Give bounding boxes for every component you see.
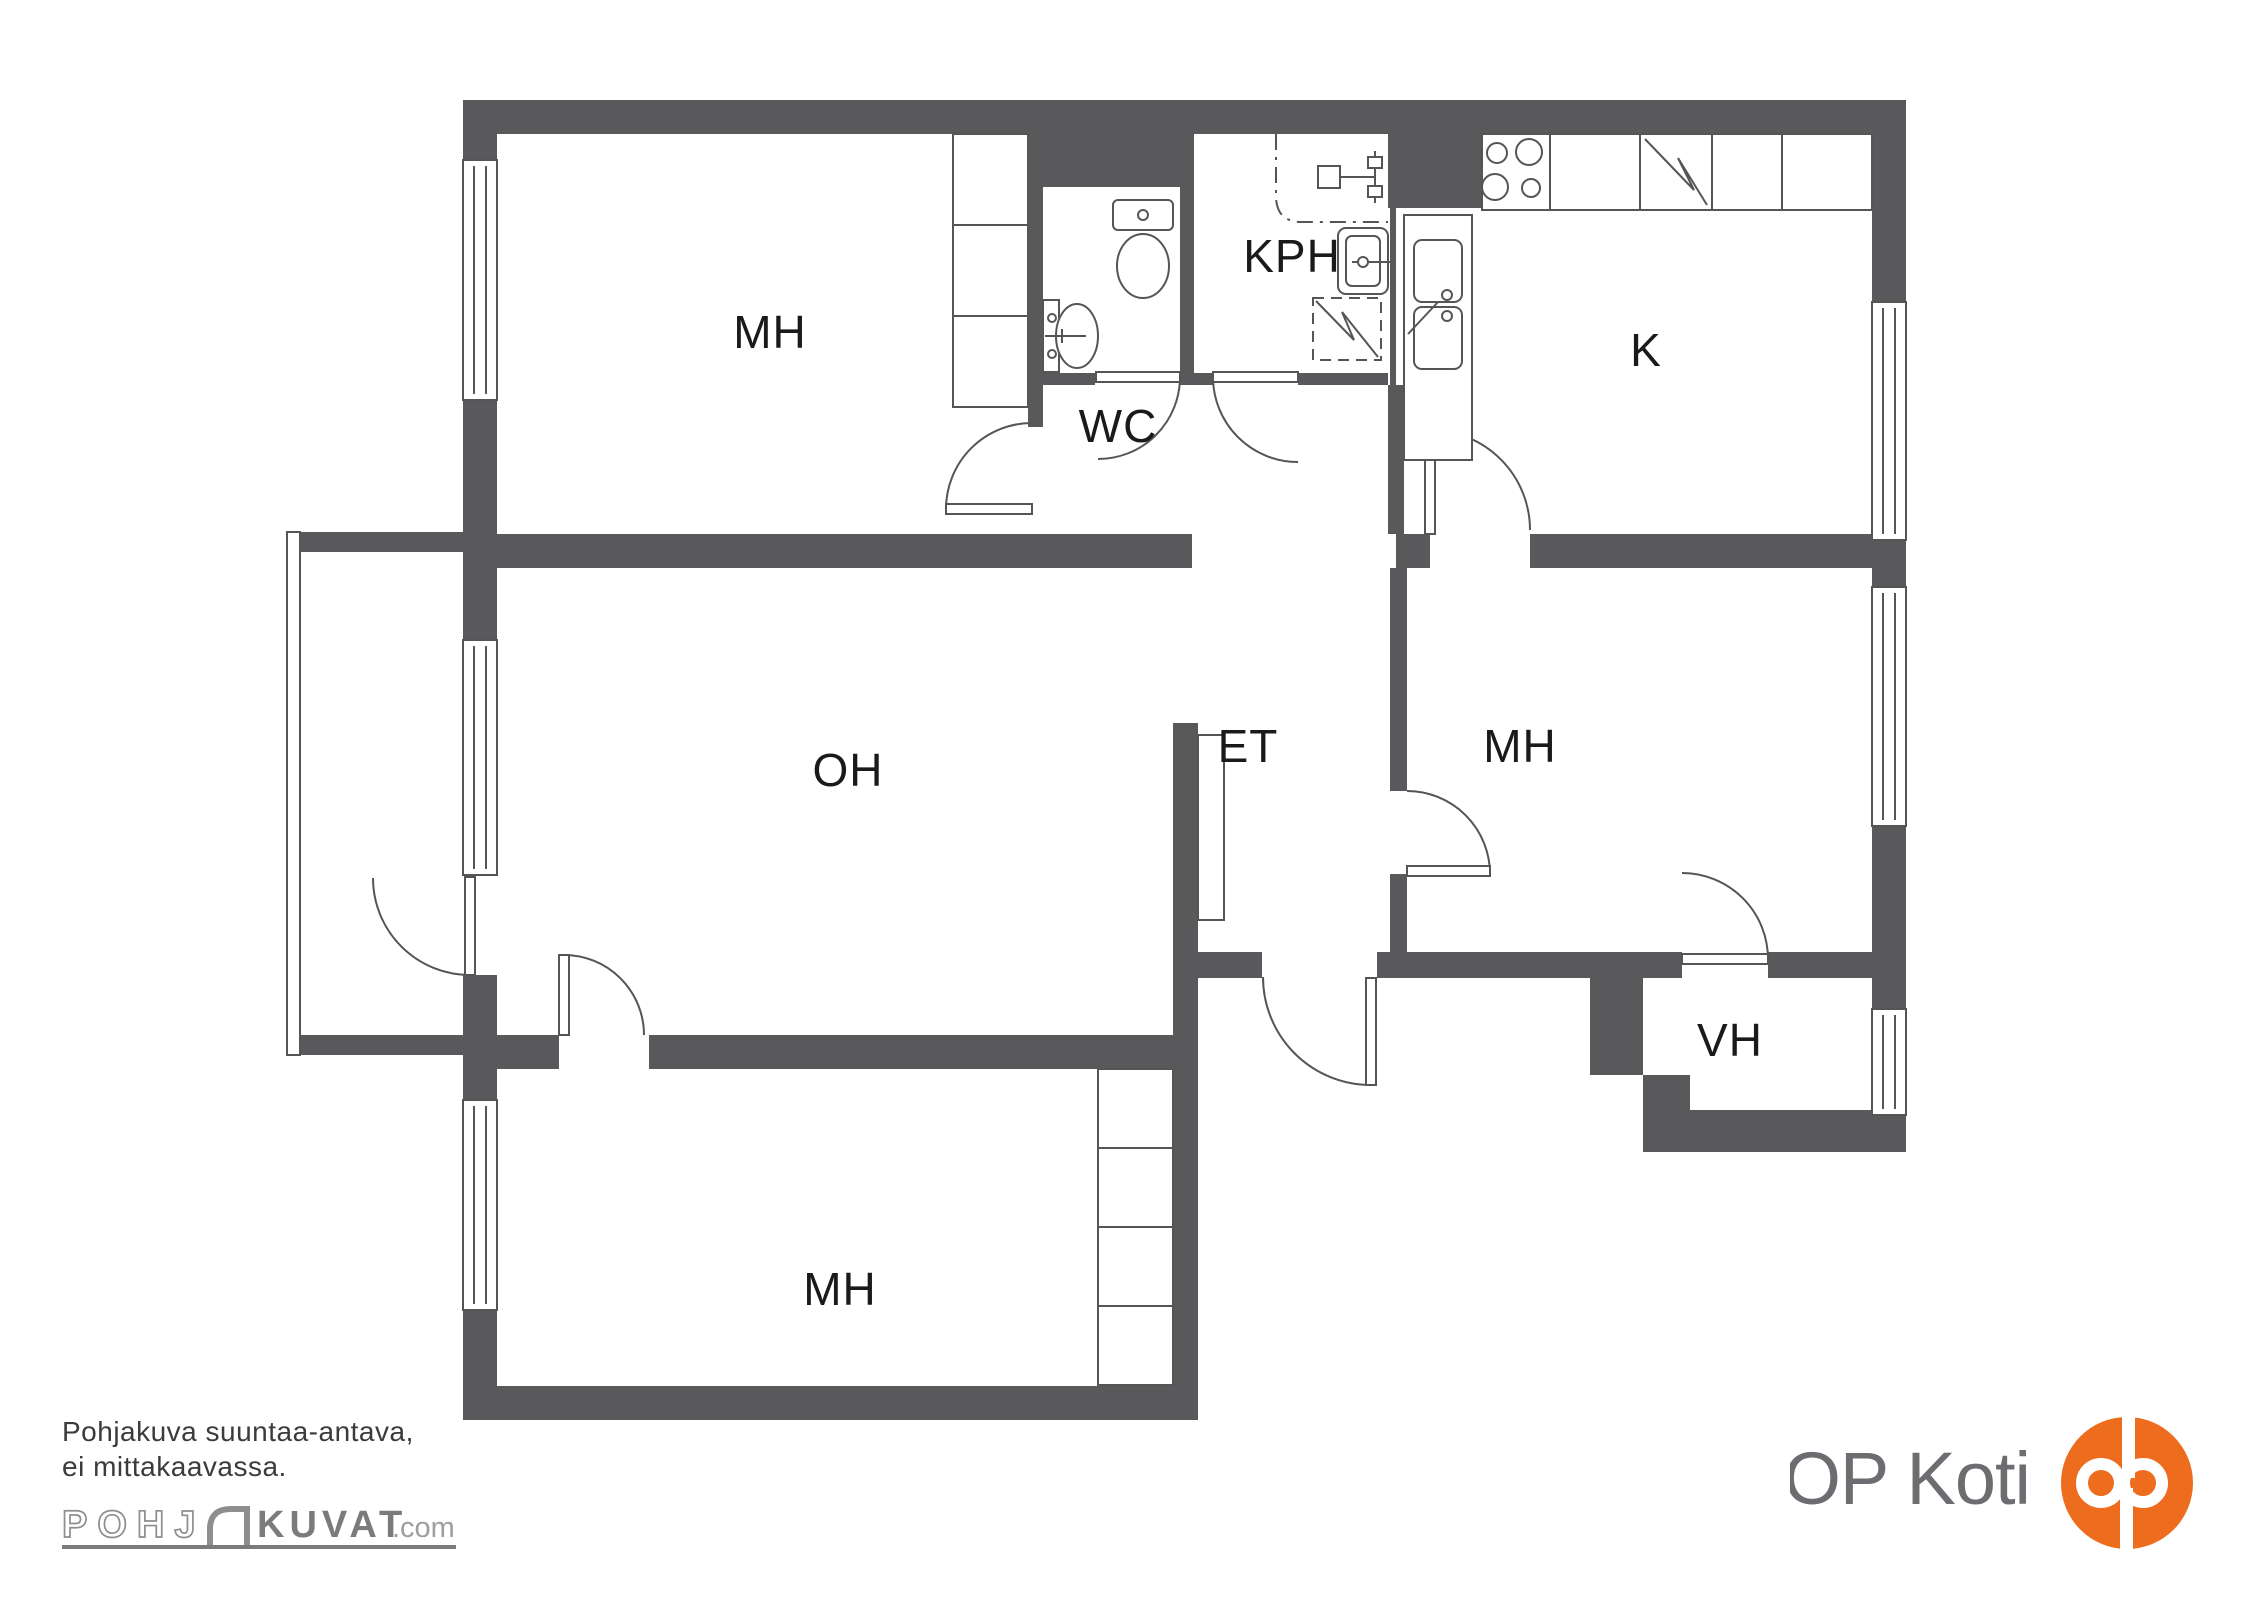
window-living-room (463, 640, 497, 875)
door-arc-icon (210, 1509, 247, 1547)
shower-icon (1318, 151, 1382, 203)
wall (463, 534, 1192, 568)
doors (373, 372, 1768, 1085)
wall (1872, 134, 1906, 302)
door-bedroom-right (1407, 791, 1490, 876)
wardrobe-bedroom-top (953, 134, 1028, 407)
wall (1388, 385, 1404, 534)
room-label-bedroom-top: MH (733, 306, 807, 358)
wall (1388, 134, 1482, 208)
wall (1173, 723, 1198, 1420)
room-label-entry: ET (1218, 720, 1279, 772)
balcony-railing (287, 532, 300, 1055)
wall (463, 568, 497, 640)
door-entrance (1263, 977, 1376, 1085)
room-label-kitchen: K (1630, 324, 1662, 376)
wall (1377, 952, 1590, 978)
wall (1396, 534, 1430, 568)
wall (1390, 208, 1396, 385)
wall (1590, 978, 1643, 1075)
room-label-storage: VH (1697, 1014, 1763, 1066)
toilet-icon (1113, 200, 1173, 298)
wall (1872, 826, 1906, 1009)
pohjakuvat-logo-com-text: .com (392, 1512, 455, 1544)
wall (1872, 540, 1906, 587)
floorplan-page: MH WC KPH K OH ET MH VH MH Pohjakuva suu… (0, 0, 2262, 1600)
wall (1590, 952, 1682, 978)
wardrobe-bedroom-bottom (1098, 1069, 1173, 1385)
wall (463, 1035, 559, 1069)
wall (463, 1386, 1198, 1420)
door-balcony (373, 877, 475, 975)
door-storage (1682, 873, 1768, 964)
wall (1043, 373, 1095, 385)
wall (1028, 134, 1043, 427)
door-bedroom-top (946, 423, 1032, 514)
wall (1643, 1110, 1906, 1152)
washing-machine-icon (1313, 298, 1381, 360)
wall (649, 1035, 1173, 1069)
floorplan-drawing: MH WC KPH K OH ET MH VH MH (0, 0, 2262, 1600)
disclaimer-line-2: ei mittakaavassa. (62, 1449, 414, 1484)
wall (1390, 874, 1407, 955)
wall (463, 400, 497, 534)
disclaimer-text: Pohjakuva suuntaa-antava, ei mittakaavas… (62, 1414, 414, 1484)
wall (1298, 373, 1388, 385)
window-bedroom-top (463, 160, 497, 400)
wall (463, 100, 1906, 134)
balcony-wall (300, 1035, 463, 1055)
room-label-living-room: OH (813, 744, 884, 796)
kitchen-sink-icon (1404, 215, 1472, 460)
wall (1180, 134, 1194, 385)
window-bedroom-bottom (463, 1100, 497, 1310)
wall (1194, 373, 1213, 385)
op-koti-logo: OP Koti (1790, 1408, 2210, 1588)
door-bedroom-bottom (559, 955, 644, 1035)
pohjakuvat-logo-outline-text: POHJ (62, 1504, 205, 1546)
room-label-bathroom: KPH (1243, 230, 1341, 282)
balcony-wall (300, 532, 463, 552)
room-label-bedroom-right: MH (1483, 720, 1557, 772)
pohjakuvat-logo: POHJ KUVAT .com (60, 1496, 460, 1554)
room-label-wc: WC (1079, 400, 1158, 452)
wall (1643, 1075, 1690, 1110)
wall (1043, 134, 1180, 187)
window-storage (1872, 1009, 1906, 1115)
wall (1390, 568, 1407, 791)
pohjakuvat-logo-solid-text: KUVAT (257, 1504, 407, 1546)
wall (1198, 952, 1262, 978)
room-label-bedroom-bottom: MH (803, 1263, 877, 1315)
window-bedroom-right (1872, 587, 1906, 826)
door-bathroom (1213, 372, 1298, 462)
op-logo-icon (2061, 1416, 2193, 1550)
wall (463, 134, 497, 160)
bathroom-sink-icon (1338, 228, 1390, 294)
window-kitchen (1872, 302, 1906, 540)
op-koti-text: OP Koti (1790, 1437, 2030, 1520)
wc-sink-icon (1043, 300, 1098, 372)
wall (1530, 534, 1906, 568)
wc-fixtures (1043, 200, 1173, 372)
disclaimer-line-1: Pohjakuva suuntaa-antava, (62, 1414, 414, 1449)
